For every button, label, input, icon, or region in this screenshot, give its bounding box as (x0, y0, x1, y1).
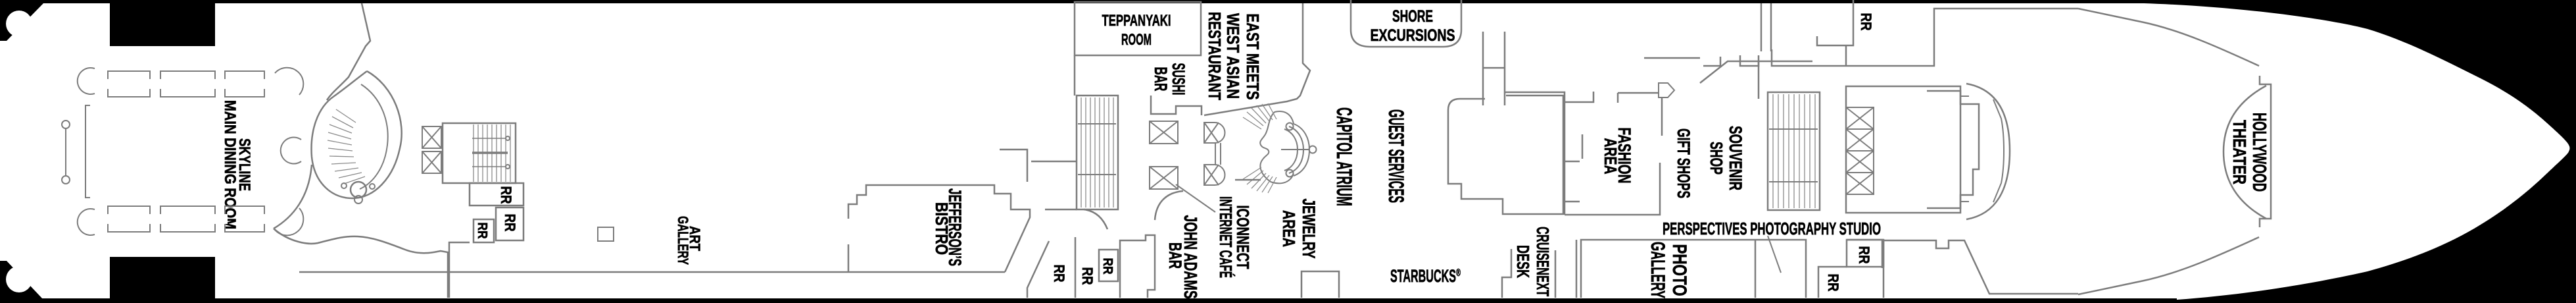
svg-text:GALLERY: GALLERY (675, 216, 691, 265)
svg-text:INTERNET CAFÉ: INTERNET CAFÉ (1216, 196, 1236, 278)
svg-text:CRUISENEXT: CRUISENEXT (1533, 227, 1553, 296)
svg-text:RESTAURANT: RESTAURANT (1205, 12, 1225, 100)
svg-text:TEPPANYAKI: TEPPANYAKI (1102, 12, 1171, 30)
svg-text:RR: RR (502, 214, 518, 232)
svg-text:SUSHI: SUSHI (1169, 63, 1188, 96)
svg-text:ROOM: ROOM (1121, 31, 1152, 49)
svg-text:DESK: DESK (1513, 245, 1533, 278)
svg-text:AREA: AREA (1601, 138, 1620, 175)
svg-text:BAR: BAR (1151, 67, 1171, 92)
svg-text:AREA: AREA (1279, 210, 1299, 247)
svg-text:BAR: BAR (1165, 242, 1185, 269)
svg-text:SHOP: SHOP (1707, 142, 1726, 175)
svg-text:RR: RR (1079, 267, 1096, 285)
svg-text:GUEST SERVICES: GUEST SERVICES (1384, 109, 1408, 203)
svg-text:EAST MEETS: EAST MEETS (1243, 14, 1263, 100)
svg-text:RR: RR (498, 186, 514, 204)
svg-text:STARBUCKS®: STARBUCKS® (1390, 266, 1461, 286)
svg-text:PERSPECTIVES PHOTOGRAPHY STUDI: PERSPECTIVES PHOTOGRAPHY STUDIO (1663, 219, 1881, 238)
svg-text:RR: RR (1100, 258, 1115, 275)
svg-text:MAIN DINING ROOM: MAIN DINING ROOM (221, 100, 239, 229)
svg-text:RR: RR (1858, 13, 1874, 31)
svg-text:SOUVENIR: SOUVENIR (1726, 126, 1745, 190)
svg-text:RR: RR (1856, 246, 1872, 264)
svg-text:RR: RR (1051, 265, 1067, 283)
svg-text:EXCURSIONS: EXCURSIONS (1371, 26, 1455, 45)
svg-text:PHOTO: PHOTO (1668, 244, 1690, 296)
svg-text:HOLLYWOOD: HOLLYWOOD (2248, 113, 2270, 192)
svg-text:GALLERY: GALLERY (1647, 242, 1668, 298)
svg-text:RR: RR (1825, 274, 1841, 292)
svg-text:THEATER: THEATER (2229, 120, 2250, 184)
svg-text:SHORE: SHORE (1392, 7, 1433, 26)
svg-text:BISTRO: BISTRO (932, 202, 952, 255)
svg-text:CAPITOL ATRIUM: CAPITOL ATRIUM (1332, 107, 1356, 206)
svg-text:GIFT SHOPS: GIFT SHOPS (1674, 128, 1693, 198)
svg-text:RR: RR (475, 223, 489, 239)
svg-text:WEST ASIAN: WEST ASIAN (1223, 13, 1243, 99)
svg-text:JEWELRY: JEWELRY (1299, 199, 1319, 259)
